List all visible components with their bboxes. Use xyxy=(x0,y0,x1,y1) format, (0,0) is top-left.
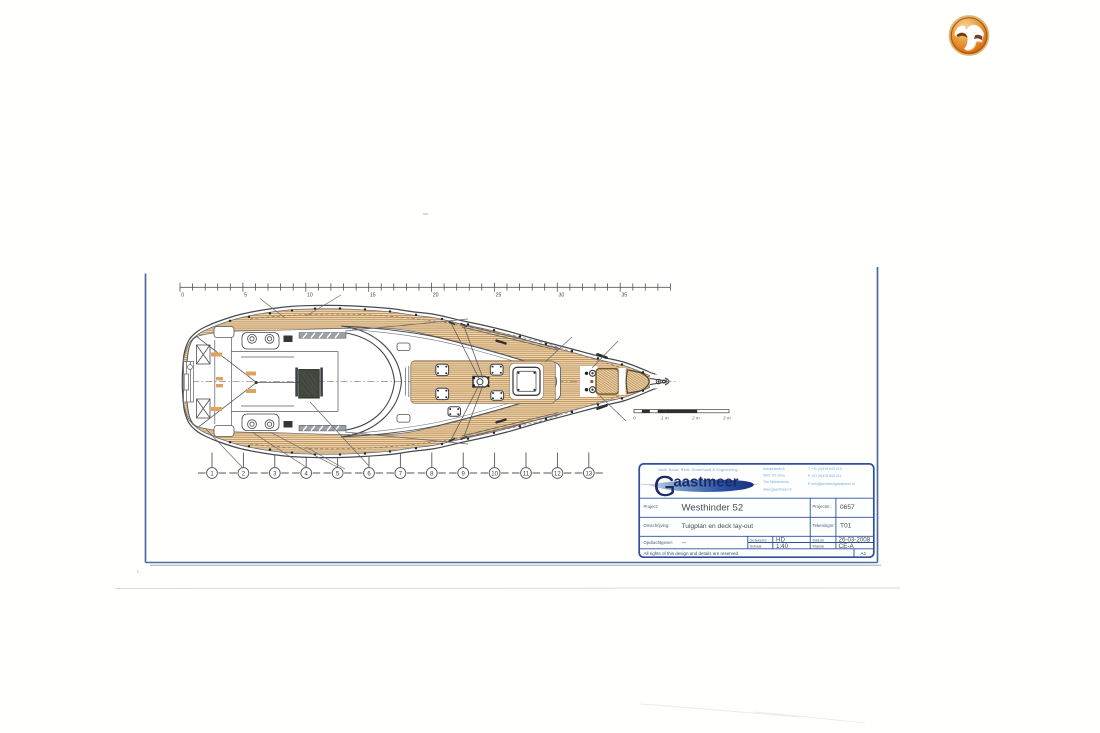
svg-text:Omschrijving:: Omschrijving: xyxy=(644,523,670,528)
svg-text:9001 XX Grou: 9001 XX Grou xyxy=(763,474,785,478)
svg-text:www.gaastmeer.nl: www.gaastmeer.nl xyxy=(763,488,792,492)
svg-text:T +31 (0)515 543 210: T +31 (0)515 543 210 xyxy=(808,467,842,471)
svg-text:CE-A: CE-A xyxy=(839,543,855,550)
svg-text:Project:: Project: xyxy=(644,504,659,509)
svg-text:Klasse: Klasse xyxy=(813,544,825,549)
svg-text:Jacht Bouw, Refit, Onderhoud &: Jacht Bouw, Refit, Onderhoud & Engineeri… xyxy=(658,468,738,472)
svg-text:Industriewei 6: Industriewei 6 xyxy=(763,467,785,471)
svg-text:All rights of this design and: All rights of this design and details ar… xyxy=(644,551,740,556)
svg-text:E info@jachtwerfgaastmeer.nl: E info@jachtwerfgaastmeer.nl xyxy=(808,482,855,486)
svg-text:Datum: Datum xyxy=(813,537,824,542)
svg-text:A1: A1 xyxy=(861,551,867,556)
svg-text:Westhinder 52: Westhinder 52 xyxy=(682,503,744,514)
svg-text:1:40: 1:40 xyxy=(776,543,789,550)
svg-text:Schaal: Schaal xyxy=(750,544,762,549)
svg-text:0657: 0657 xyxy=(840,504,855,511)
svg-text:Opdrachtgever:: Opdrachtgever: xyxy=(644,540,674,545)
svg-text:aastmeer: aastmeer xyxy=(674,475,739,491)
svg-text:Getekend: Getekend xyxy=(750,537,767,542)
svg-text:Tuigplan en deck lay-out: Tuigplan en deck lay-out xyxy=(682,523,754,530)
svg-text:Projectnr.:: Projectnr.: xyxy=(813,504,832,509)
svg-text:T01: T01 xyxy=(840,523,852,530)
svg-text:F +31 (0)515 543 211: F +31 (0)515 543 211 xyxy=(808,474,842,478)
svg-text:--: -- xyxy=(682,540,686,547)
svg-text:The Netherlands: The Netherlands xyxy=(763,480,789,484)
svg-text:Tekeningnr:: Tekeningnr: xyxy=(813,523,835,528)
